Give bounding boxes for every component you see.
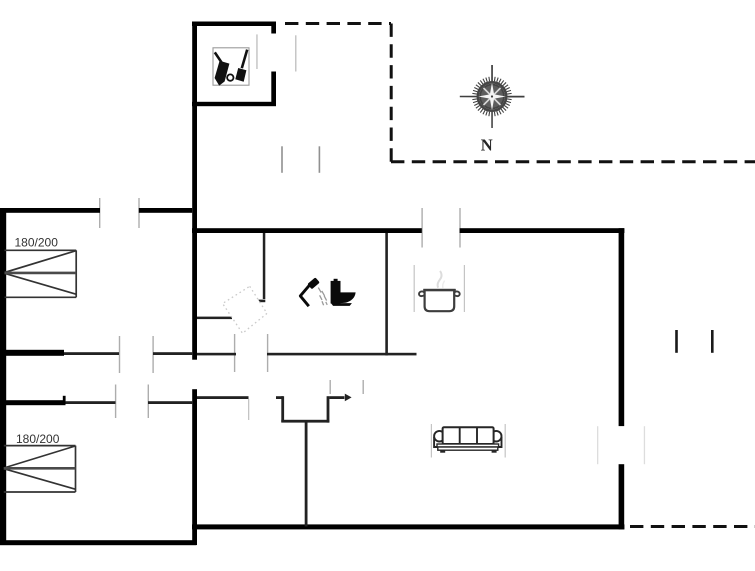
- svg-text:N: N: [481, 136, 493, 155]
- svg-text:180/200: 180/200: [16, 432, 60, 446]
- svg-text:180/200: 180/200: [15, 236, 59, 250]
